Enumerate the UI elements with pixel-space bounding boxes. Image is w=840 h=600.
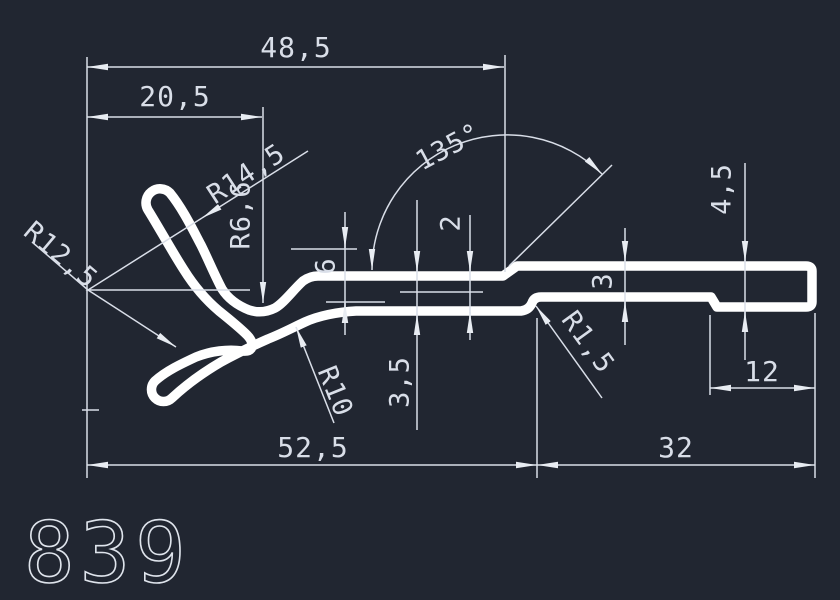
dim-3-label: 3 xyxy=(588,272,619,289)
dim-4-5-label: 4,5 xyxy=(707,163,738,215)
dim-2-label: 2 xyxy=(436,214,467,231)
dim-48-5-label: 48,5 xyxy=(260,31,331,64)
dim-32-label: 32 xyxy=(658,431,694,464)
dim-12-label: 12 xyxy=(744,355,780,388)
profile-number: 839 xyxy=(24,504,191,600)
cad-drawing-canvas: 48,5 20,5 52,5 32 12 135° 6 3,5 2 3 4,5 … xyxy=(0,0,840,600)
radius-r6-6-label: R6,6 xyxy=(226,180,257,249)
dim-3-5-label: 3,5 xyxy=(385,356,416,408)
dim-20-5-label: 20,5 xyxy=(139,80,210,113)
dim-52-5-label: 52,5 xyxy=(277,431,348,464)
cad-viewport: 48,5 20,5 52,5 32 12 135° 6 3,5 2 3 4,5 … xyxy=(0,0,840,600)
dim-6-label: 6 xyxy=(311,257,342,274)
